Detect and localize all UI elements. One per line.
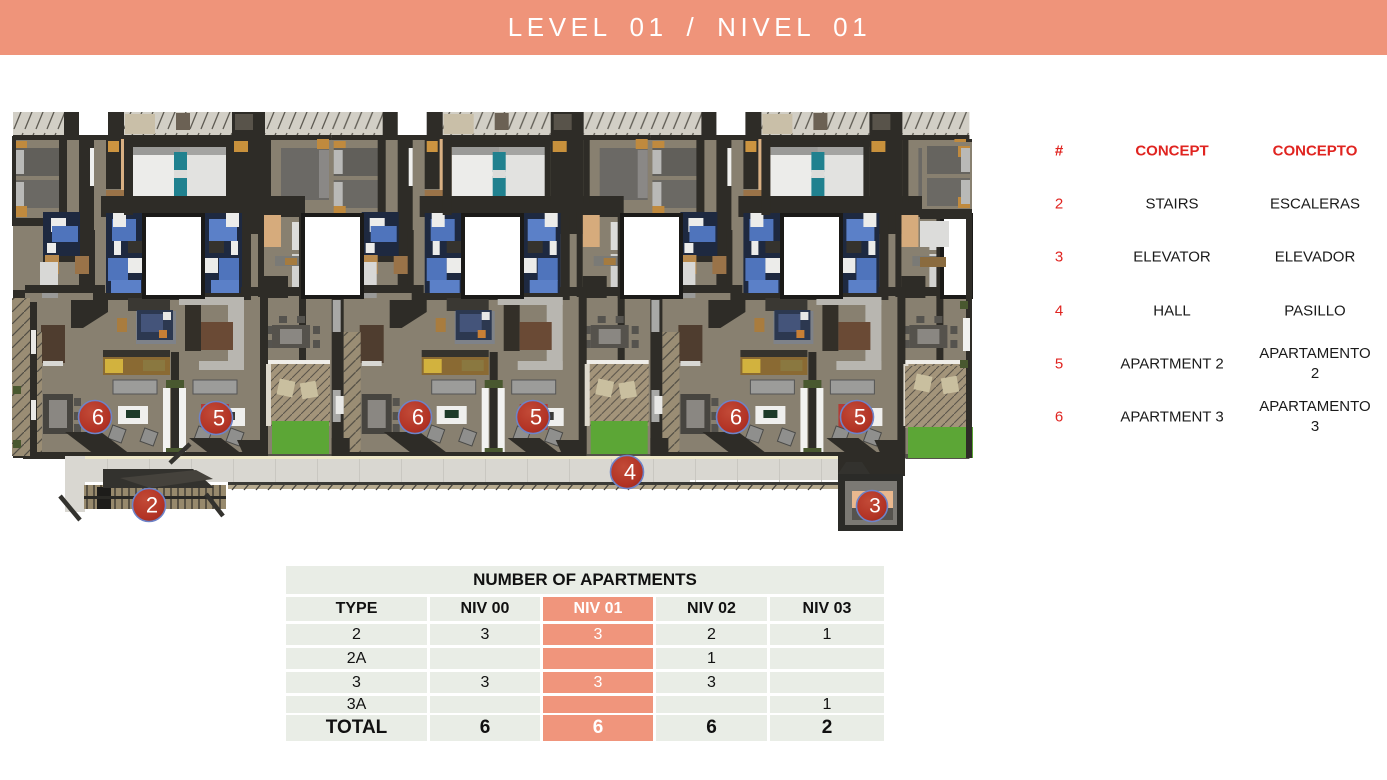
svg-text:4: 4 (624, 460, 636, 485)
svg-text:5: 5 (530, 405, 542, 430)
svg-text:6: 6 (92, 405, 104, 430)
svg-text:3: 3 (869, 495, 881, 518)
svg-text:2: 2 (146, 493, 158, 518)
svg-text:5: 5 (854, 405, 866, 430)
svg-text:6: 6 (730, 405, 742, 430)
svg-text:6: 6 (412, 405, 424, 430)
svg-text:5: 5 (213, 406, 225, 431)
